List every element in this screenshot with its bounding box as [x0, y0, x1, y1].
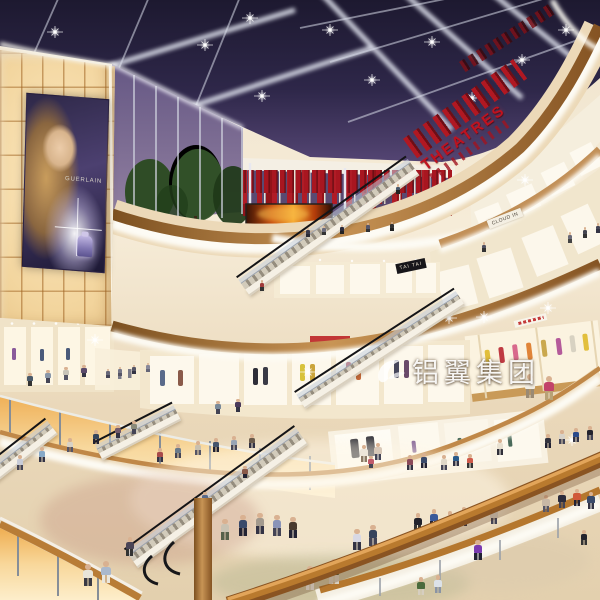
person: [93, 430, 99, 444]
person: [215, 401, 220, 414]
person: [289, 517, 298, 538]
person: [558, 491, 565, 508]
person: [305, 566, 315, 590]
person: [568, 232, 573, 243]
person: [146, 363, 150, 372]
watermark: 铝翼集团: [374, 351, 540, 390]
person: [587, 492, 594, 509]
person: [453, 452, 459, 466]
person: [497, 439, 504, 455]
person: [573, 489, 580, 506]
person: [369, 525, 378, 546]
amber-balustrade-corner: [0, 518, 142, 600]
tree-icon: [125, 145, 253, 228]
person: [446, 511, 454, 530]
person: [414, 513, 422, 532]
shop-sign-cloud-in: CLOUD IN: [487, 208, 524, 229]
person: [239, 515, 248, 536]
person: [131, 421, 136, 434]
person: [106, 369, 110, 378]
person: [490, 506, 498, 524]
person: [81, 365, 86, 377]
swoosh-bird-icon: [374, 354, 408, 388]
person: [39, 447, 45, 462]
person: [460, 507, 468, 526]
person: [441, 455, 447, 470]
person: [27, 373, 32, 386]
person: [260, 280, 265, 291]
person: [353, 529, 362, 550]
person: [542, 495, 549, 512]
person: [581, 530, 587, 545]
shop-sign-tai-tai: TAI TAI: [395, 258, 426, 274]
escalator: [0, 418, 57, 500]
person: [256, 513, 265, 534]
person: [374, 443, 381, 460]
person: [213, 438, 219, 452]
person: [202, 492, 207, 505]
person: [249, 434, 255, 448]
person: [587, 426, 593, 440]
person: [545, 434, 551, 448]
person: [482, 242, 486, 252]
mall-atrium-photo: GUERLAIN THEATRES CLOUD IN TAI TAI 铝翼集团: [0, 0, 600, 600]
level3-fascia-curve: [112, 264, 600, 357]
person: [368, 456, 373, 468]
person: [175, 444, 181, 458]
person: [132, 365, 136, 374]
person: [115, 425, 120, 438]
person: [340, 225, 344, 234]
person: [573, 428, 579, 442]
perfume-bottle-icon: [77, 235, 93, 257]
person: [430, 509, 438, 528]
person: [544, 376, 554, 400]
person: [118, 367, 122, 376]
person: [63, 367, 68, 380]
shop-sign-red: [514, 313, 548, 328]
theatres-sign: THEATRES: [403, 59, 544, 182]
person: [45, 370, 50, 383]
watermark-text: 铝翼集团: [412, 351, 540, 390]
person: [83, 564, 92, 586]
person: [559, 430, 565, 444]
person: [474, 540, 482, 560]
person: [421, 453, 427, 468]
person: [467, 454, 473, 468]
person: [242, 466, 247, 478]
person: [126, 537, 134, 556]
person: [195, 441, 201, 455]
roof-garden-glass-wall: [112, 64, 253, 228]
person: [231, 436, 237, 450]
person: [407, 455, 413, 470]
person: [221, 519, 230, 540]
person: [396, 184, 400, 194]
billboard-brand: GUERLAIN: [65, 176, 102, 185]
person: [366, 223, 370, 232]
person: [67, 438, 73, 452]
person: [596, 223, 600, 233]
perfume-billboard: GUERLAIN: [22, 93, 109, 273]
person: [157, 448, 163, 462]
person: [434, 575, 442, 593]
person: [273, 515, 282, 536]
person: [390, 222, 394, 231]
person: [583, 227, 588, 238]
person: [360, 445, 367, 462]
person: [417, 577, 425, 595]
person: [101, 561, 110, 583]
red-shop-sign: [310, 336, 350, 343]
person: [235, 399, 240, 412]
person: [322, 226, 326, 235]
person: [17, 455, 23, 470]
person: [306, 228, 310, 237]
person: [329, 559, 340, 584]
